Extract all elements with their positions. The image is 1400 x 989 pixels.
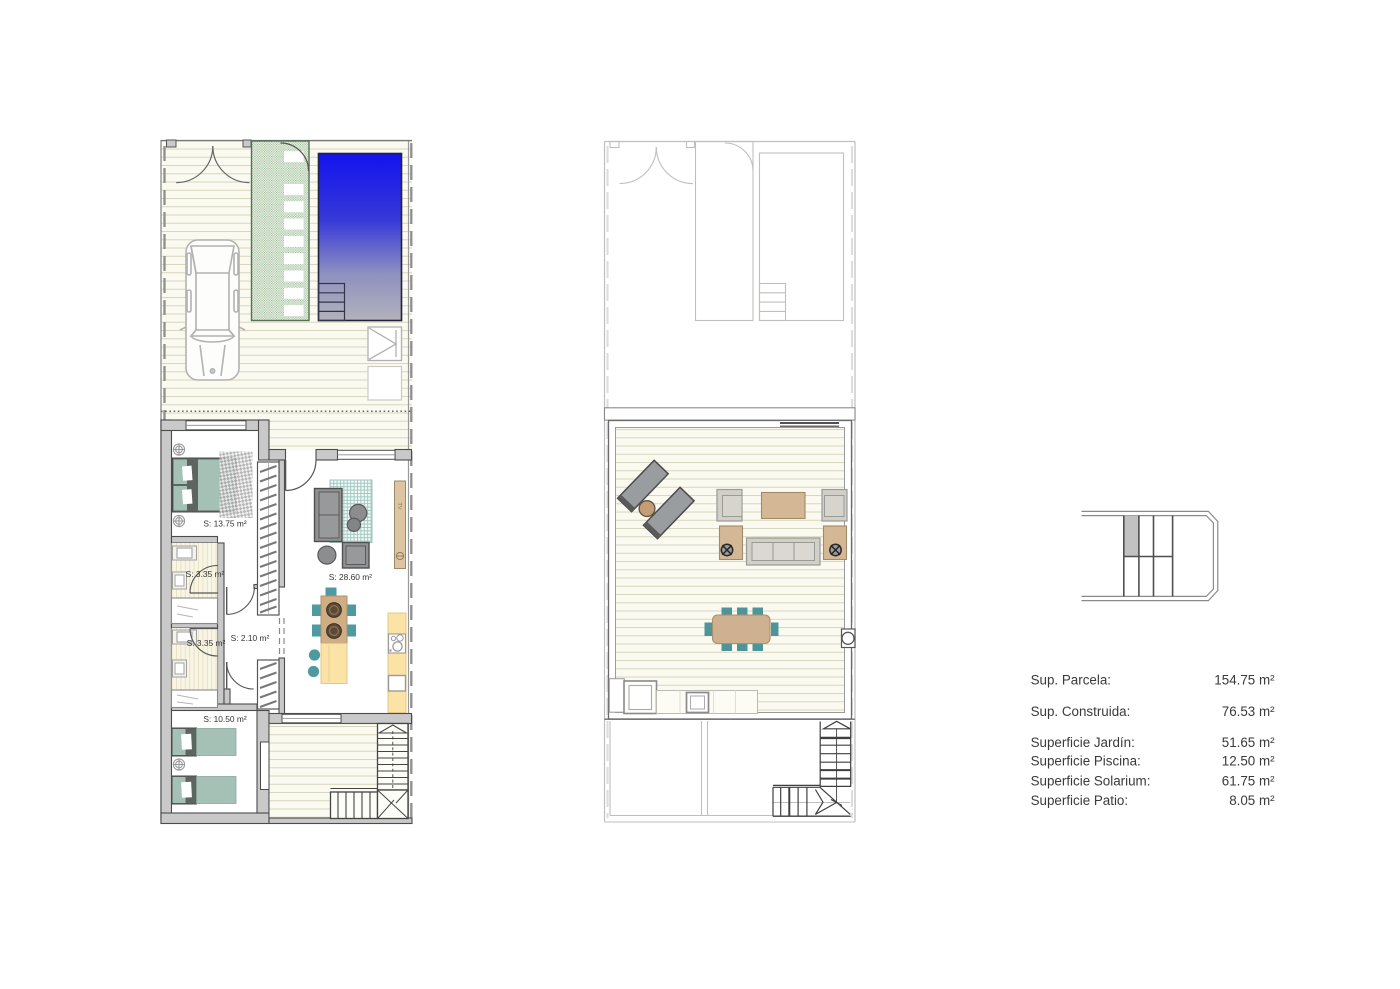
svg-text:8.05 m²: 8.05 m² [1229, 793, 1275, 808]
svg-text:S: 2.10 m²: S: 2.10 m² [231, 633, 270, 643]
svg-text:S: 13.75 m²: S: 13.75 m² [203, 519, 247, 529]
svg-text:Sup. Parcela:: Sup. Parcela: [1031, 673, 1111, 688]
svg-text:154.75 m²: 154.75 m² [1214, 673, 1275, 688]
svg-text:S: 28.60 m²: S: 28.60 m² [329, 572, 373, 582]
svg-text:Superficie Jardín:: Superficie Jardín: [1031, 735, 1135, 750]
svg-text:Superficie Solarium:: Superficie Solarium: [1031, 773, 1151, 788]
svg-text:Sup. Construida:: Sup. Construida: [1031, 704, 1131, 719]
svg-text:Superficie Piscina:: Superficie Piscina: [1031, 754, 1141, 769]
svg-text:61.75 m²: 61.75 m² [1222, 773, 1275, 788]
svg-text:51.65 m²: 51.65 m² [1222, 735, 1275, 750]
svg-text:S: 10.50 m²: S: 10.50 m² [203, 714, 247, 724]
svg-text:S: 3.35 m²: S: 3.35 m² [187, 638, 226, 648]
svg-text:76.53 m²: 76.53 m² [1222, 704, 1275, 719]
svg-text:TV: TV [396, 502, 402, 509]
svg-text:Superficie Patio:: Superficie Patio: [1031, 793, 1129, 808]
svg-text:S: 3.35 m²: S: 3.35 m² [186, 569, 225, 579]
svg-text:12.50 m²: 12.50 m² [1222, 754, 1275, 769]
